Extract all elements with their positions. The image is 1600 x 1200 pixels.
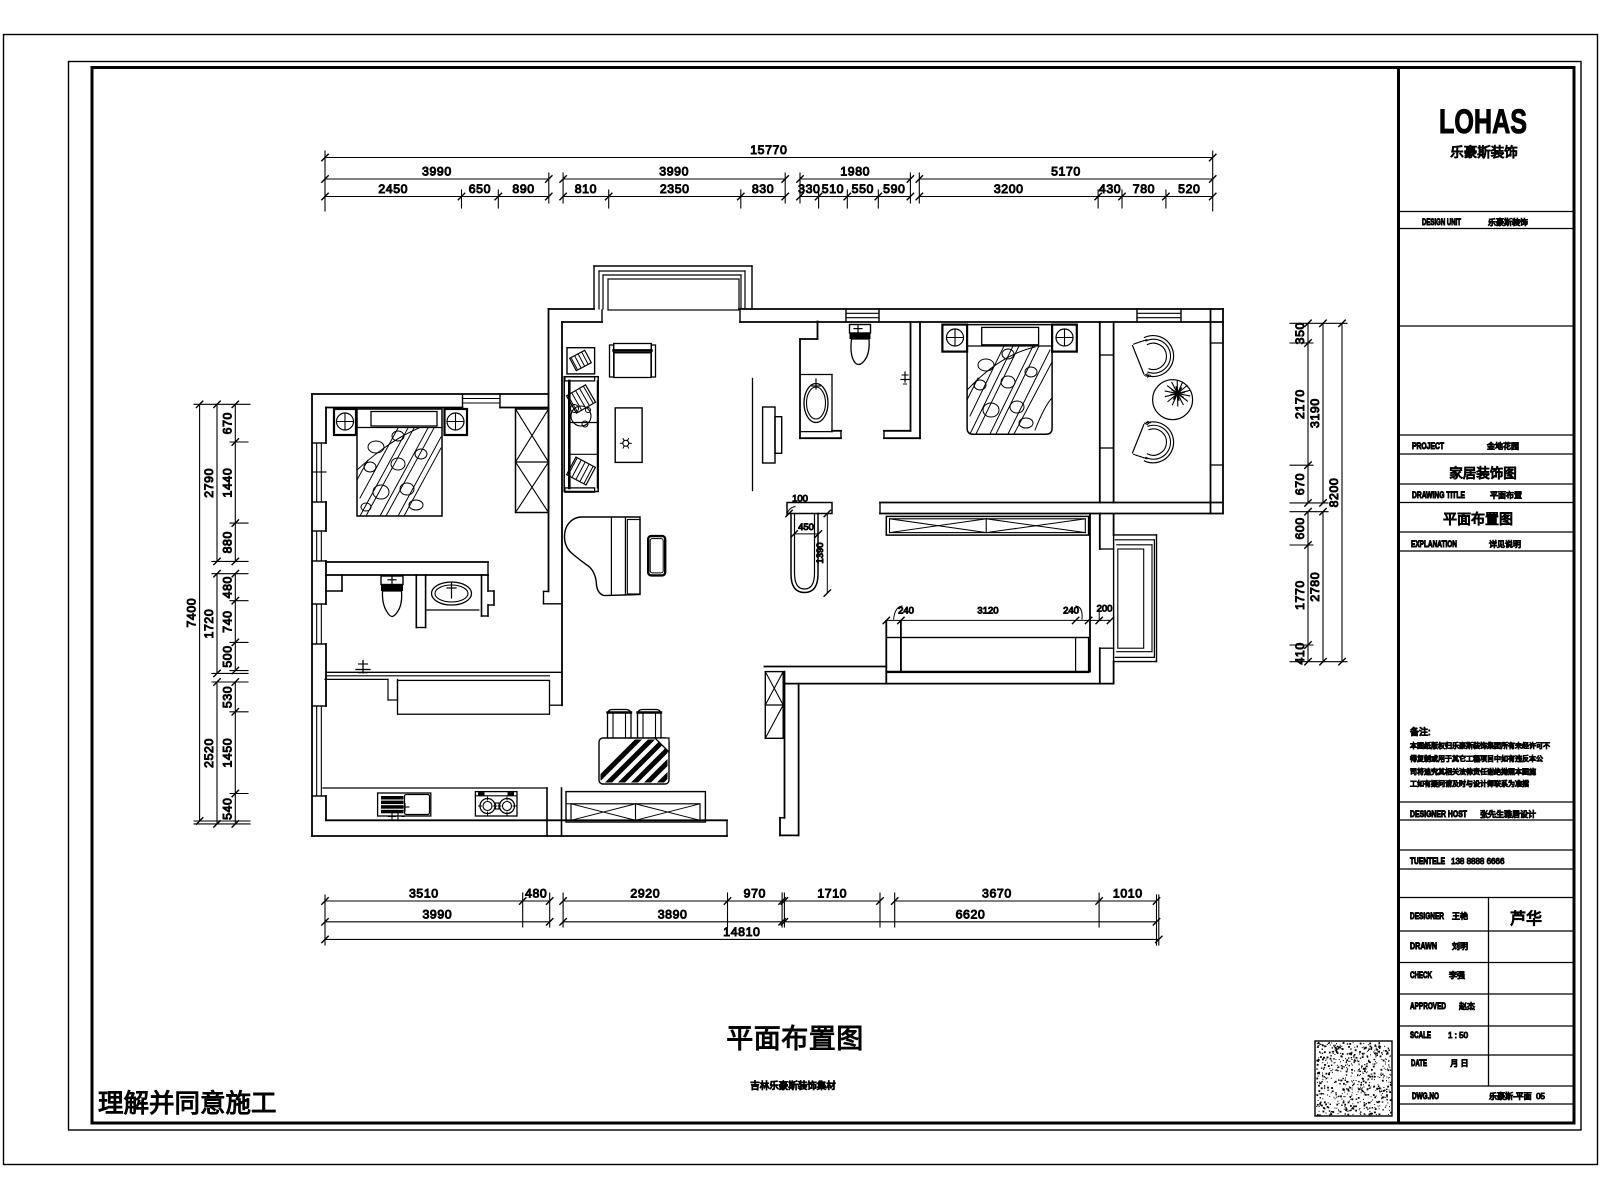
svg-text:2350: 2350 — [660, 182, 690, 196]
svg-text:5170: 5170 — [1051, 165, 1081, 179]
svg-text:530: 530 — [220, 686, 234, 708]
svg-text:赵杰: 赵杰 — [1459, 1001, 1475, 1011]
svg-text:6620: 6620 — [956, 907, 986, 921]
svg-text:月 日: 月 日 — [1448, 1059, 1468, 1068]
svg-text:DESIGNER: DESIGNER — [1410, 911, 1444, 921]
svg-text:550: 550 — [852, 182, 874, 196]
svg-text:2920: 2920 — [630, 887, 660, 901]
svg-text:DESIGNER HOST: DESIGNER HOST — [1410, 809, 1467, 819]
svg-text:详见说明: 详见说明 — [1489, 539, 1521, 549]
svg-text:590: 590 — [883, 182, 905, 196]
svg-text:平面布置图: 平面布置图 — [726, 1024, 864, 1054]
svg-text:3510: 3510 — [409, 887, 439, 901]
svg-text:APPROVED: APPROVED — [1410, 1001, 1446, 1011]
svg-text:810: 810 — [575, 182, 597, 196]
svg-text:600: 600 — [1293, 517, 1307, 539]
svg-text:650: 650 — [469, 182, 491, 196]
svg-text:740: 740 — [220, 610, 234, 632]
svg-text:330: 330 — [798, 182, 820, 196]
svg-text:350: 350 — [1293, 322, 1307, 344]
svg-text:880: 880 — [220, 531, 234, 553]
svg-text:刘明: 刘明 — [1452, 941, 1468, 951]
svg-text:138 8888 6666: 138 8888 6666 — [1451, 857, 1505, 866]
svg-text:1770: 1770 — [1293, 580, 1307, 610]
svg-text:李强: 李强 — [1449, 970, 1465, 980]
svg-text:510: 510 — [822, 182, 844, 196]
svg-text:乐豪斯-平面 05: 乐豪斯-平面 05 — [1489, 1091, 1546, 1101]
svg-text:3190: 3190 — [1308, 398, 1322, 428]
svg-text:3670: 3670 — [982, 887, 1012, 901]
svg-text:670: 670 — [1293, 473, 1307, 495]
svg-text:平面布置图: 平面布置图 — [1443, 511, 1513, 527]
svg-text:PROJECT: PROJECT — [1412, 441, 1444, 451]
svg-text:240: 240 — [898, 606, 914, 617]
svg-text:8200: 8200 — [1327, 478, 1341, 508]
svg-text:3990: 3990 — [659, 165, 689, 179]
svg-text:670: 670 — [220, 412, 234, 434]
svg-text:得复制或用于其它工程项目中如有违反本公: 得复制或用于其它工程项目中如有违反本公 — [1410, 754, 1543, 763]
svg-text:15770: 15770 — [750, 143, 787, 157]
svg-text:理解并同意施工: 理解并同意施工 — [98, 1090, 277, 1118]
svg-text:480: 480 — [220, 576, 234, 598]
svg-text:3990: 3990 — [422, 165, 452, 179]
svg-text:备注:: 备注: — [1410, 726, 1431, 737]
svg-text:1710: 1710 — [817, 887, 847, 901]
svg-text:TUENTELE: TUENTELE — [1410, 856, 1445, 866]
svg-text:LOHAS: LOHAS — [1439, 103, 1527, 141]
svg-text:2450: 2450 — [378, 182, 408, 196]
svg-text:CHECK: CHECK — [1410, 970, 1432, 980]
svg-text:480: 480 — [525, 887, 547, 901]
svg-text:司将追究其相关法律责任谢绝拗照本图施: 司将追究其相关法律责任谢绝拗照本图施 — [1410, 767, 1536, 776]
svg-text:830: 830 — [752, 182, 774, 196]
svg-text:DATE: DATE — [1411, 1058, 1427, 1068]
svg-text:DRAWN: DRAWN — [1410, 941, 1437, 951]
svg-text:500: 500 — [220, 645, 234, 667]
svg-text:乐豪斯装饰: 乐豪斯装饰 — [1450, 145, 1518, 160]
svg-text:DESIGN UNIT: DESIGN UNIT — [1422, 217, 1461, 227]
svg-text:芦华: 芦华 — [1510, 910, 1542, 928]
svg-text:1720: 1720 — [202, 609, 216, 639]
svg-text:SCALE: SCALE — [1410, 1030, 1431, 1040]
svg-text:2520: 2520 — [202, 738, 216, 768]
svg-text:工如有疑问请及时与设计师联系为准擋: 工如有疑问请及时与设计师联系为准擋 — [1410, 779, 1529, 788]
svg-text:3200: 3200 — [994, 182, 1024, 196]
svg-text:1 : 50: 1 : 50 — [1448, 1031, 1469, 1040]
svg-text:平面布置: 平面布置 — [1490, 490, 1522, 500]
svg-text:240: 240 — [1063, 606, 1079, 617]
svg-text:1440: 1440 — [220, 468, 234, 498]
svg-text:1450: 1450 — [220, 738, 234, 768]
svg-text:14810: 14810 — [723, 925, 760, 939]
svg-text:890: 890 — [512, 182, 534, 196]
svg-text:970: 970 — [744, 887, 766, 901]
svg-text:EXPLANATION: EXPLANATION — [1411, 539, 1457, 549]
svg-text:7400: 7400 — [185, 598, 199, 628]
svg-text:3990: 3990 — [422, 907, 452, 921]
svg-text:3890: 3890 — [658, 907, 688, 921]
svg-text:1980: 1980 — [840, 165, 870, 179]
svg-text:100: 100 — [792, 494, 808, 505]
svg-text:2780: 2780 — [1308, 572, 1322, 602]
svg-text:王艳: 王艳 — [1452, 911, 1468, 921]
svg-text:520: 520 — [1178, 182, 1200, 196]
svg-text:DRAWING TITLE: DRAWING TITLE — [1412, 490, 1465, 500]
svg-text:家居装饰图: 家居装饰图 — [1449, 465, 1517, 481]
svg-text:1010: 1010 — [1113, 887, 1143, 901]
svg-text:吉林乐豪斯装饰集材: 吉林乐豪斯装饰集材 — [750, 1080, 836, 1092]
svg-text:3120: 3120 — [977, 606, 998, 617]
svg-text:780: 780 — [1133, 182, 1155, 196]
svg-text:1390: 1390 — [815, 542, 826, 563]
svg-text:DWG.NO: DWG.NO — [1412, 1091, 1439, 1101]
svg-text:乐豪斯装饰: 乐豪斯装饰 — [1488, 217, 1528, 227]
svg-text:450: 450 — [798, 522, 814, 533]
svg-text:2790: 2790 — [202, 468, 216, 498]
svg-text:2170: 2170 — [1293, 389, 1307, 419]
svg-text:金地花园: 金地花园 — [1487, 441, 1519, 451]
svg-text:540: 540 — [220, 798, 234, 820]
svg-text:张先生雅居设计: 张先生雅居设计 — [1480, 809, 1536, 819]
svg-text:430: 430 — [1099, 182, 1121, 196]
svg-text:本图纸版权归乐豪斯装饰集团所有未经许可不: 本图纸版权归乐豪斯装饰集团所有未经许可不 — [1410, 741, 1550, 750]
